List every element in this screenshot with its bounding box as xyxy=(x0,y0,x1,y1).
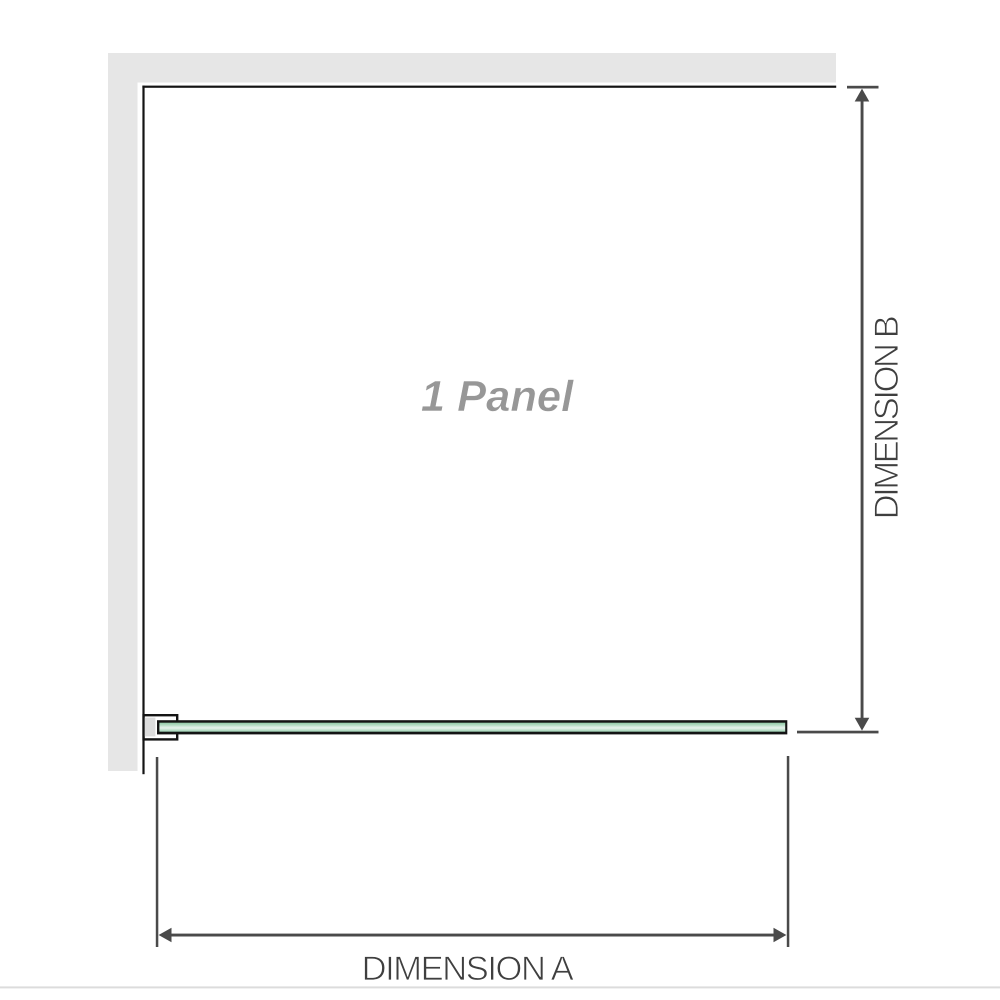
svg-text:DIMENSION B: DIMENSION B xyxy=(868,316,906,519)
svg-text:DIMENSION A: DIMENSION A xyxy=(362,950,574,988)
svg-text:1 Panel: 1 Panel xyxy=(421,373,574,421)
